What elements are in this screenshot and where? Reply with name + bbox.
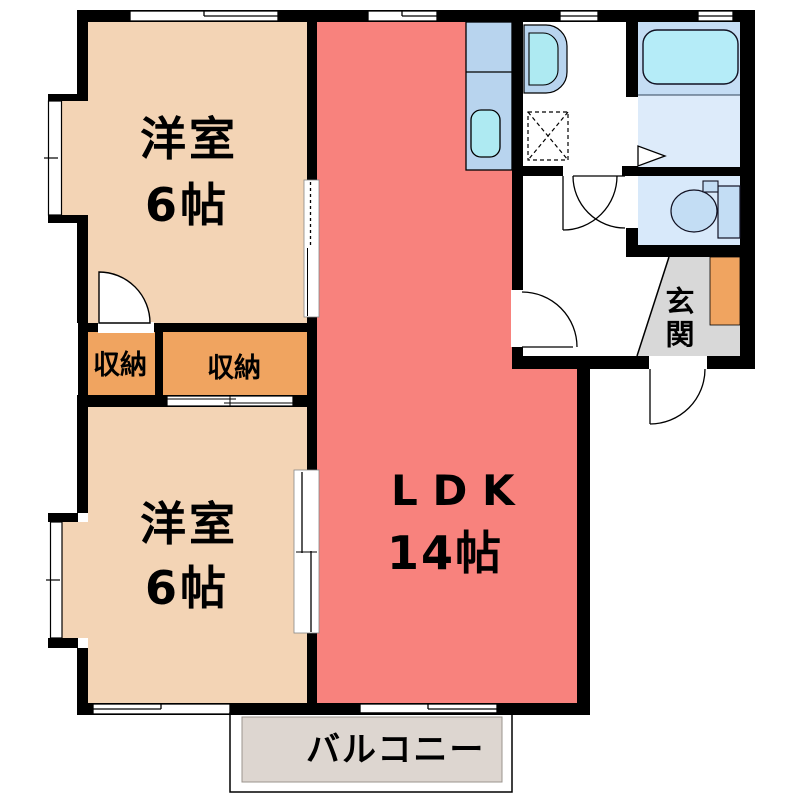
- ldk-label: LDK: [391, 470, 529, 512]
- bathtub: [643, 30, 738, 84]
- ldk-floor-upper: [317, 22, 512, 703]
- toilet-bowl: [671, 190, 717, 232]
- wall-closet-bottom: [77, 395, 307, 407]
- bathtub-surround: [638, 22, 740, 95]
- wash-basin: [524, 25, 567, 93]
- bedroom-bottom-floor: [88, 407, 307, 703]
- floor-plan: 洋室 6帖 洋室 6帖 LDK 14帖 収納 収納 玄関 バルコニー: [0, 0, 800, 800]
- bathroom-floor: [638, 22, 740, 167]
- bedroom-top-label: 洋室: [140, 116, 238, 162]
- washing-machine-pan: [528, 112, 568, 160]
- bathroom-area: [638, 22, 740, 167]
- bedroom-top-baywindow-floor: [60, 101, 88, 215]
- wall-closet-divider: [155, 332, 163, 395]
- bedroom-bottom-size: 6帖: [145, 565, 229, 611]
- wall-washroom-bathroom: [626, 10, 638, 97]
- bathroom-door: [638, 146, 665, 166]
- wall-closet-top: [88, 323, 307, 332]
- wall-left-mid: [77, 222, 88, 323]
- bedroom-top-floor: [88, 22, 307, 323]
- toilet-button: [703, 181, 718, 192]
- wall-hall-entrance-bottom: [512, 356, 755, 369]
- bedroom-bottom-baywindow-floor: [62, 522, 88, 638]
- toilet-tank: [718, 186, 740, 238]
- entrance-step: [710, 257, 740, 325]
- wall-left-lower1: [77, 407, 88, 513]
- wall-bay2-stub-top: [48, 513, 78, 522]
- closet-left-label: 収納: [93, 352, 147, 379]
- entrance-label: 玄関: [663, 286, 692, 352]
- ldk-size: 14帖: [387, 530, 503, 576]
- wall-bay2-stub-bottom: [48, 638, 78, 648]
- wall-ldk-right-lower: [577, 356, 590, 715]
- washroom-door-swing: [563, 176, 617, 230]
- wall-ldk-hall: [512, 22, 523, 358]
- wall-top: [77, 10, 755, 22]
- wall-right: [740, 10, 755, 369]
- wall-toilet-bottom: [626, 245, 755, 257]
- toilet-door-swing: [573, 176, 625, 228]
- wall-bottom: [77, 703, 590, 715]
- wall-rooms-ldk: [307, 22, 317, 715]
- wall-left-upper: [77, 10, 88, 100]
- balcony-label: バルコニー: [306, 733, 485, 767]
- toilet-room: [638, 176, 740, 245]
- bay-window-bottom-bedroom: [46, 522, 62, 638]
- bay-window-top-bedroom: [44, 101, 62, 215]
- bedroom-top-size: 6帖: [145, 182, 229, 228]
- front-door-swing: [650, 369, 705, 424]
- toilet-floor: [638, 176, 740, 245]
- ldk-hall-door-swing: [522, 292, 577, 347]
- wall-washroom-hall: [523, 166, 755, 176]
- closet-right-label: 収納: [207, 355, 261, 382]
- wall-bay1-stub-top: [48, 94, 88, 101]
- bedroom-bottom-label: 洋室: [140, 501, 238, 547]
- ldk-floor-lower: [512, 369, 578, 703]
